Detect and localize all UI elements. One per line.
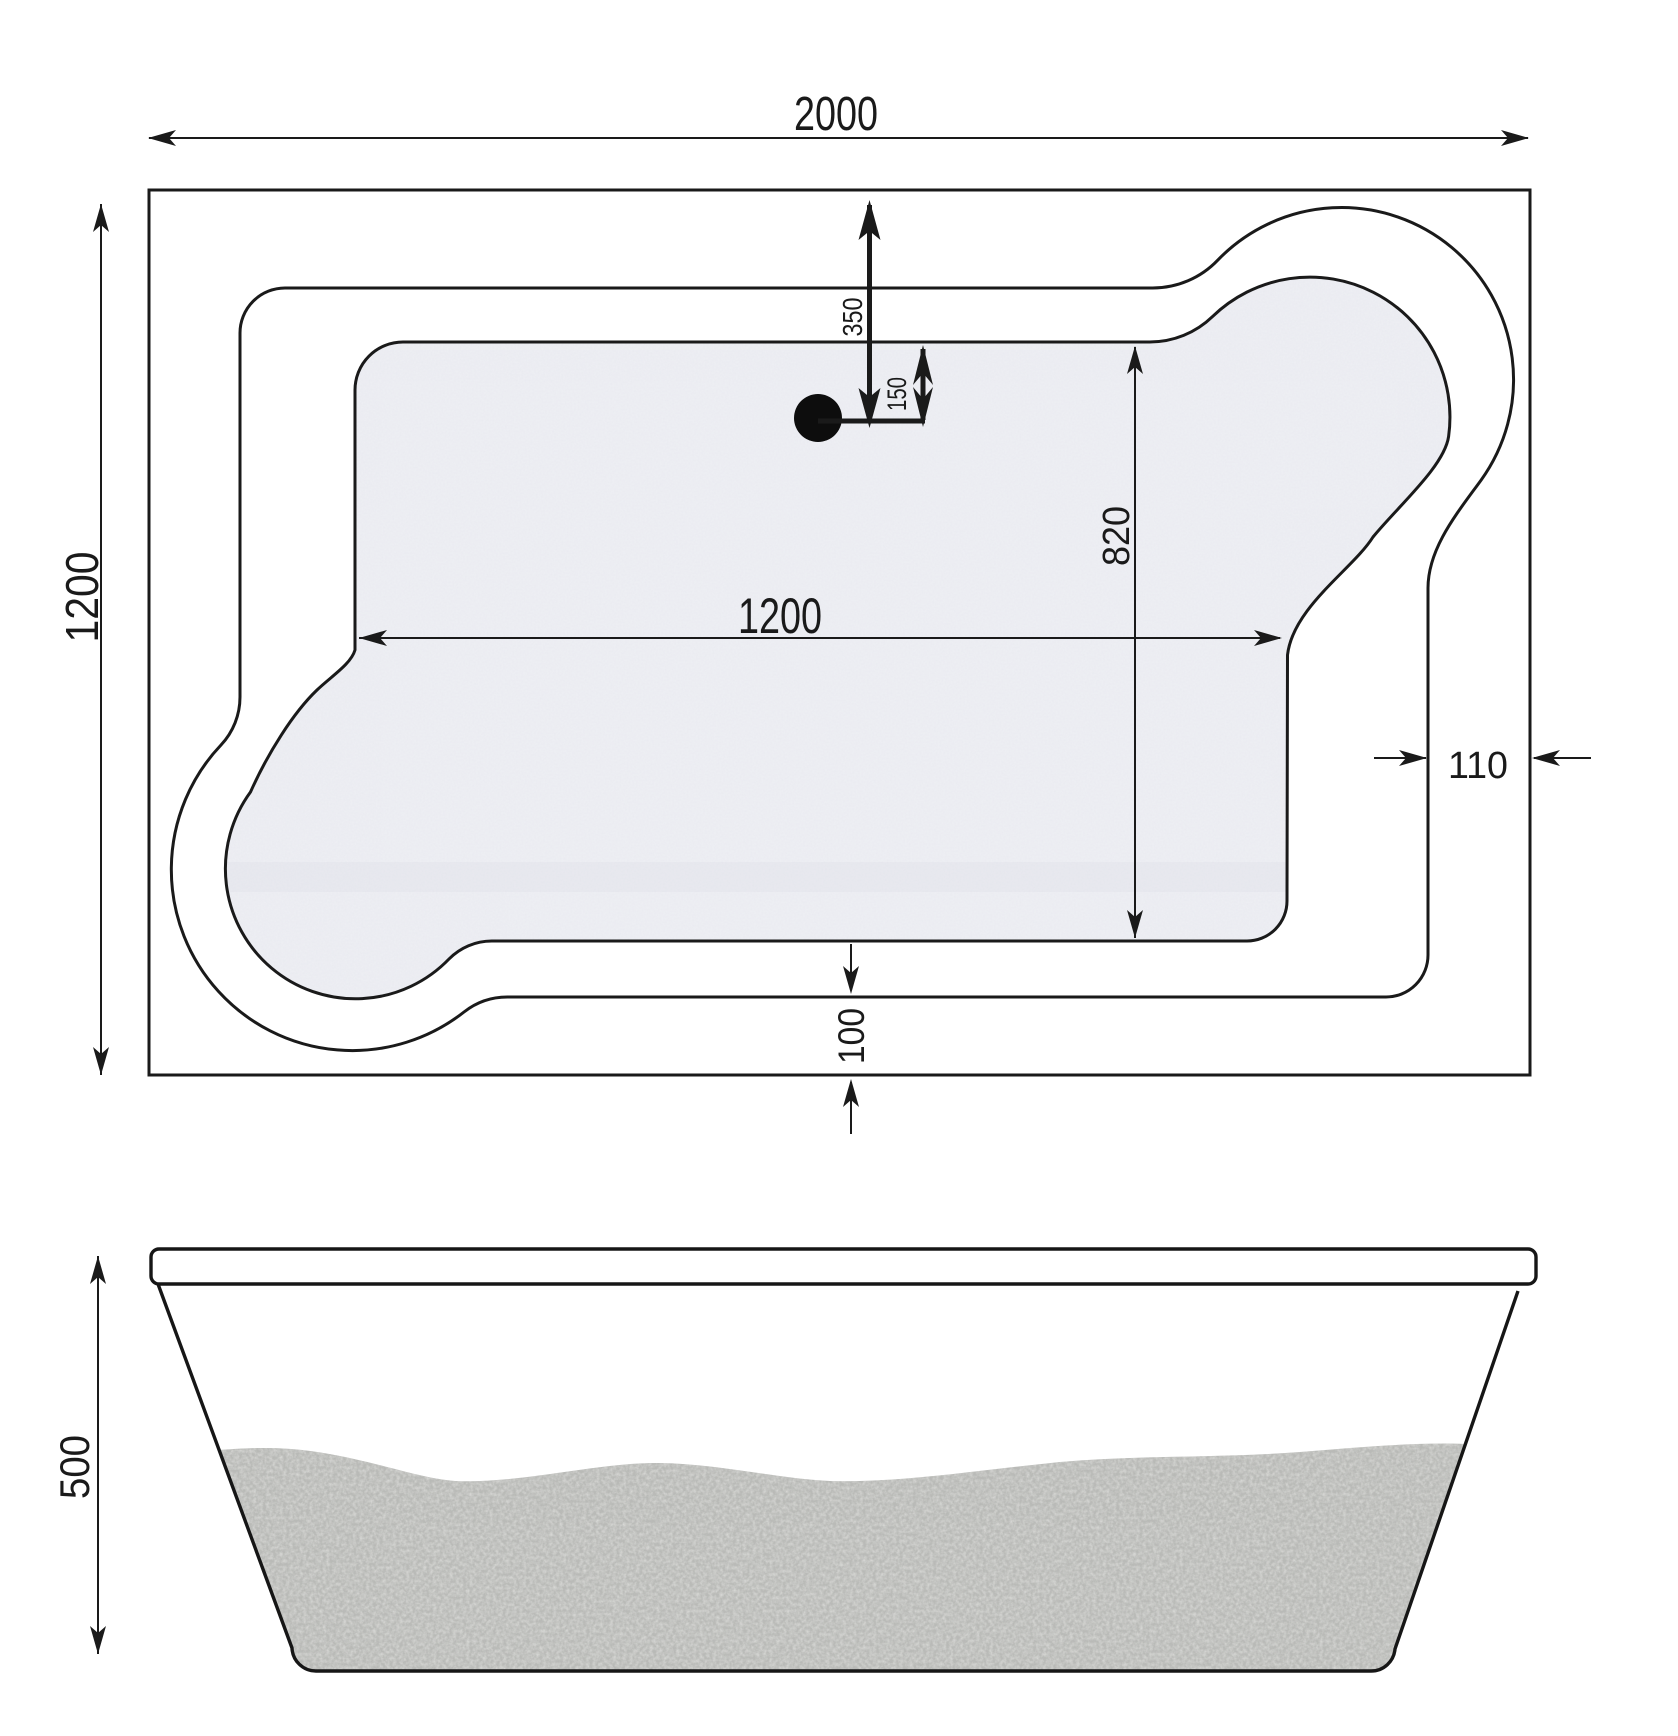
svg-text:350: 350 [837,298,868,337]
svg-text:1200: 1200 [56,552,108,643]
svg-text:100: 100 [831,1008,872,1064]
svg-text:500: 500 [51,1435,98,1499]
svg-text:2000: 2000 [794,88,878,141]
svg-text:1200: 1200 [738,588,822,644]
svg-text:110: 110 [1448,745,1508,787]
svg-text:150: 150 [882,377,912,411]
svg-text:820: 820 [1096,506,1138,566]
